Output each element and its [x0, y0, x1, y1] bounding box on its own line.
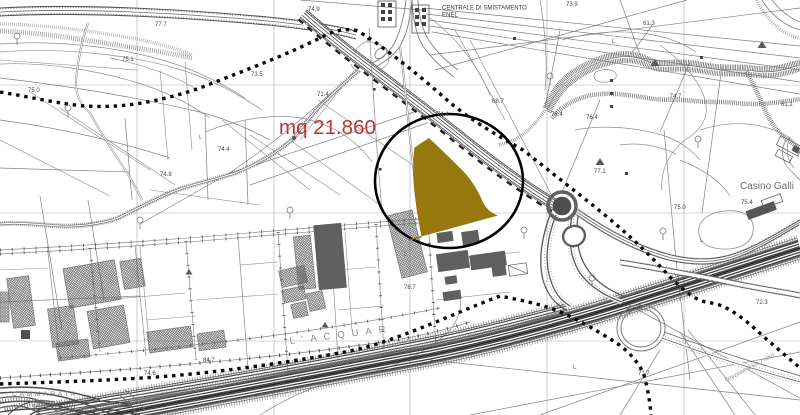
- svg-text:76.4: 76.4: [551, 112, 563, 118]
- svg-text:74.8: 74.8: [160, 172, 172, 178]
- svg-text:75.0: 75.0: [28, 88, 40, 94]
- svg-text:61.3: 61.3: [643, 21, 655, 27]
- svg-text:74.6: 74.6: [144, 371, 156, 377]
- svg-text:71.4: 71.4: [317, 92, 329, 98]
- svg-text:mq 21.860: mq 21.860: [279, 116, 376, 139]
- svg-text:68.7: 68.7: [492, 99, 504, 105]
- svg-text:CAMMARATA: CAMMARATA: [12, 391, 78, 398]
- svg-text:78.7: 78.7: [404, 285, 416, 291]
- svg-text:77.7: 77.7: [155, 22, 167, 28]
- svg-text:.74.7: .74.7: [668, 94, 682, 100]
- svg-text:ENEL: ENEL: [442, 13, 458, 19]
- svg-text:74.4: 74.4: [437, 112, 449, 118]
- svg-text:74.4: 74.4: [218, 147, 230, 153]
- svg-text:77.1: 77.1: [594, 169, 606, 175]
- svg-text:Casino Galli: Casino Galli: [740, 181, 794, 192]
- svg-text:84.7: 84.7: [203, 358, 215, 364]
- svg-text:74.9: 74.9: [308, 7, 320, 13]
- svg-text:75.4: 75.4: [741, 200, 753, 206]
- svg-text:72.3: 72.3: [756, 300, 768, 306]
- svg-text:76.4: 76.4: [586, 115, 598, 121]
- svg-text:75.1: 75.1: [122, 57, 134, 63]
- svg-text:75.0: 75.0: [674, 205, 686, 211]
- svg-text:61.1: 61.1: [781, 102, 793, 108]
- svg-text:73.5: 73.5: [251, 72, 263, 78]
- svg-text:71.7: 71.7: [638, 371, 650, 377]
- svg-text:CENTRALE DI SMISTAMENTO: CENTRALE DI SMISTAMENTO: [442, 6, 527, 12]
- svg-text:73.9: 73.9: [566, 2, 578, 8]
